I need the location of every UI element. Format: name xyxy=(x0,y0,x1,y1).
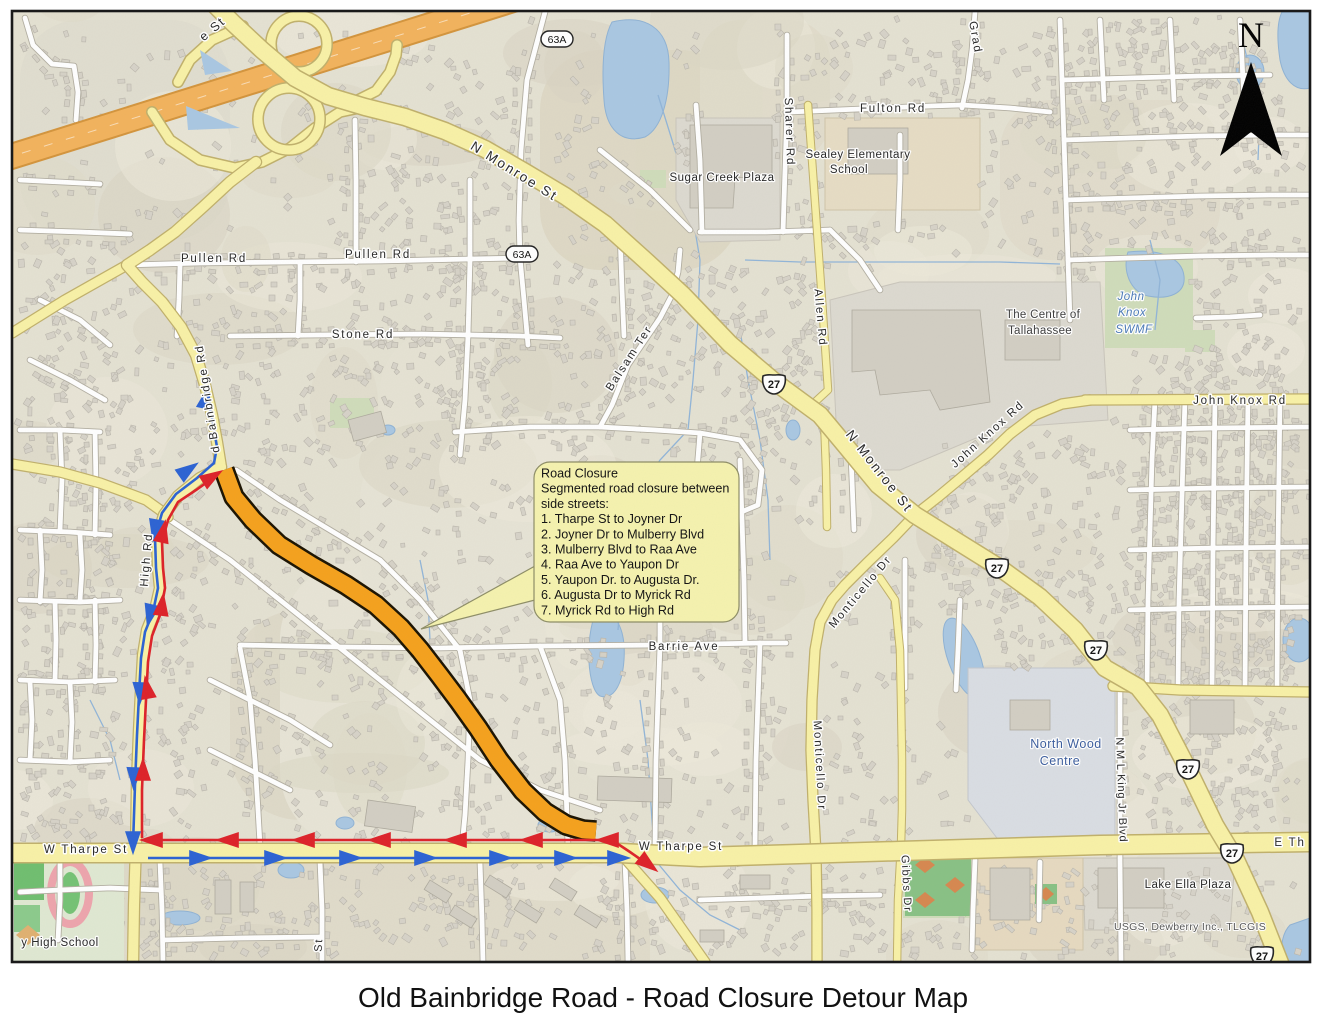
svg-text:Old Bainbridge Road - Road Clo: Old Bainbridge Road - Road Closure Detou… xyxy=(358,982,968,1013)
